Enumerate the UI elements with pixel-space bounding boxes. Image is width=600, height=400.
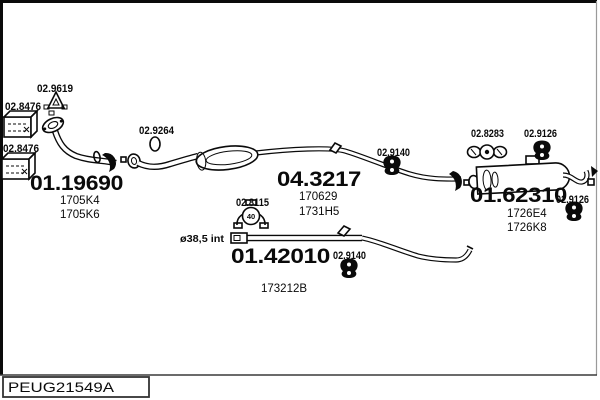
label-front-pipe-code[interactable]: 01.19690 [30,172,123,195]
rear-silencer-ref-2: 1726K8 [507,222,547,234]
clamp-mid-size-label: 40 [247,212,255,221]
front-pipe-drawing [40,114,141,172]
catalog-diagram-page: 40 02.9619 02.8476 02.8476 02.9264 02.81… [0,0,600,400]
hanger-rear-top-icon [533,141,550,161]
lower-pipe-bracket-tab [338,226,350,236]
front-pipe-ref-2: 1705K6 [60,209,100,221]
exhaust-diagram: 40 02.9619 02.8476 02.8476 02.9264 02.81… [0,0,600,400]
label-hanger-lower[interactable]: 02.9140 [333,250,366,262]
label-bracket-upper[interactable]: 02.8476 [5,101,41,113]
label-bracket-lower[interactable]: 02.8476 [3,143,39,155]
mid-muffler [195,143,259,173]
label-center-section-code[interactable]: 04.3217 [277,168,361,191]
rear-silencer-ref-1: 1726E4 [507,208,547,220]
label-clamp-rear[interactable]: 02.8283 [471,128,504,140]
lower-pipe-diameter-note: ø38,5 int [180,234,225,245]
gasket-triangle-icon [44,92,67,115]
front-pipe-ref-1: 1705K4 [60,195,100,207]
center-section-ref-2: 1731H5 [299,206,339,218]
label-hanger-rear-top[interactable]: 02.9126 [524,128,557,140]
tailpipe-square-marker [588,179,594,185]
oring-icon [150,137,160,151]
label-gasket-triangle[interactable]: 02.9619 [37,83,73,95]
center-section-ref-1: 170629 [299,191,337,203]
lower-pipe-socket [231,233,247,243]
clamp-rear-icon [468,145,507,159]
reference-plate: PEUG21549A [3,377,149,397]
label-hanger-upper[interactable]: 02.9140 [377,147,410,159]
label-lower-pipe-code[interactable]: 01.42010 [231,245,330,268]
reference-plate-code: PEUG21549A [8,379,115,395]
label-rear-silencer-code[interactable]: 01.62310 [470,184,567,207]
lower-pipe-ref-1: 173212B [261,283,307,295]
label-oring[interactable]: 02.9264 [139,125,175,137]
front-flange [40,114,65,135]
bracket-upper-icon [4,111,37,137]
label-clamp-mid[interactable]: 02.8115 [236,197,269,209]
